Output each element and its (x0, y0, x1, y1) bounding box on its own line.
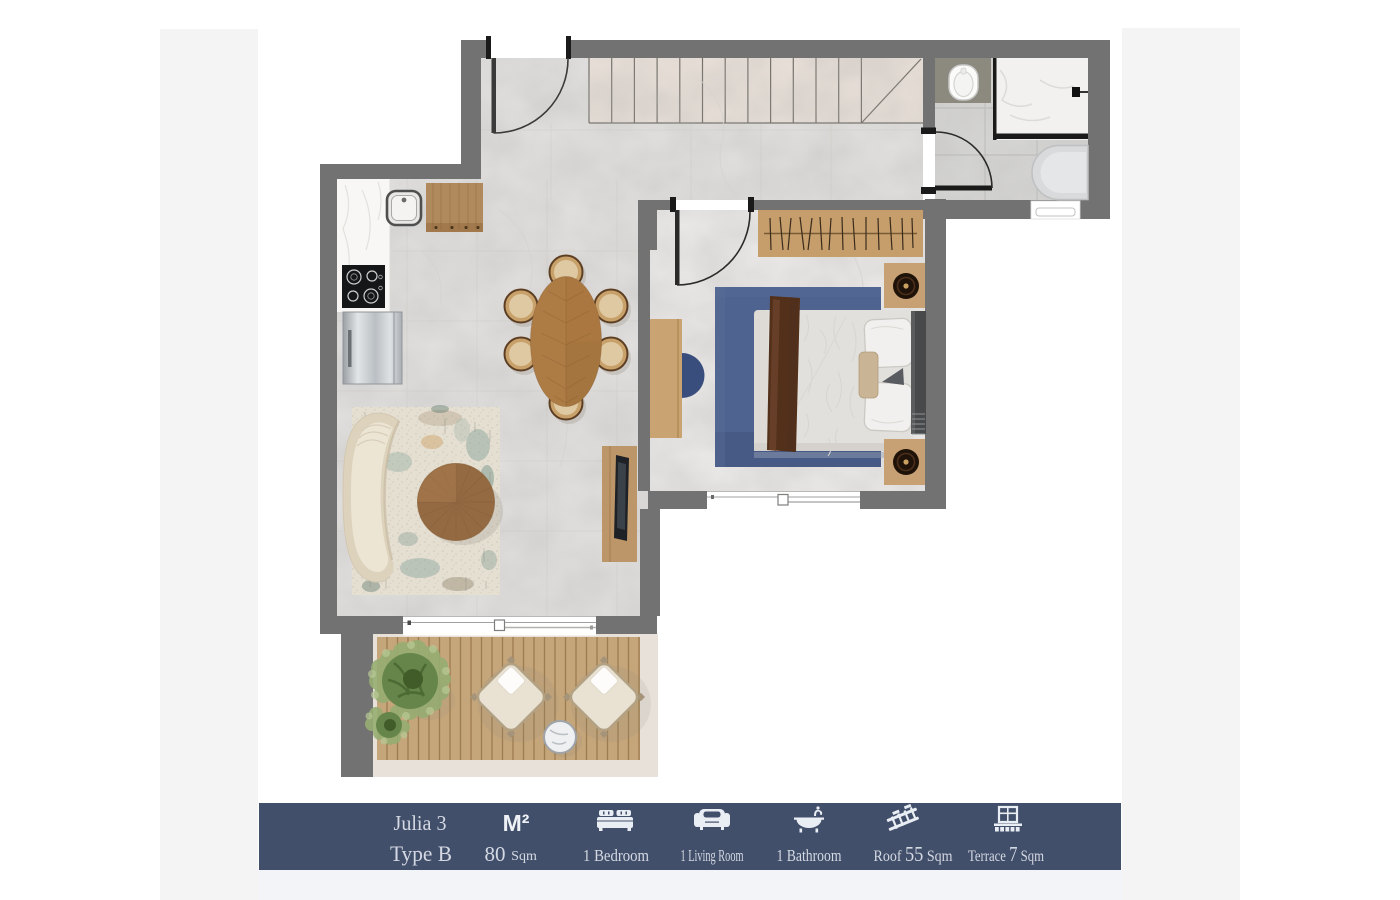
svg-text:1 Bedroom: 1 Bedroom (583, 846, 649, 865)
svg-text:Julia 3: Julia 3 (394, 811, 447, 835)
svg-text:1 Bathroom: 1 Bathroom (777, 846, 842, 865)
svg-text:Sqm: Sqm (511, 849, 537, 864)
svg-text:Type B: Type B (390, 841, 452, 866)
svg-text:80: 80 (485, 842, 506, 866)
svg-text:M²: M² (503, 810, 530, 836)
svg-text:1 Living Room: 1 Living Room (681, 846, 744, 865)
